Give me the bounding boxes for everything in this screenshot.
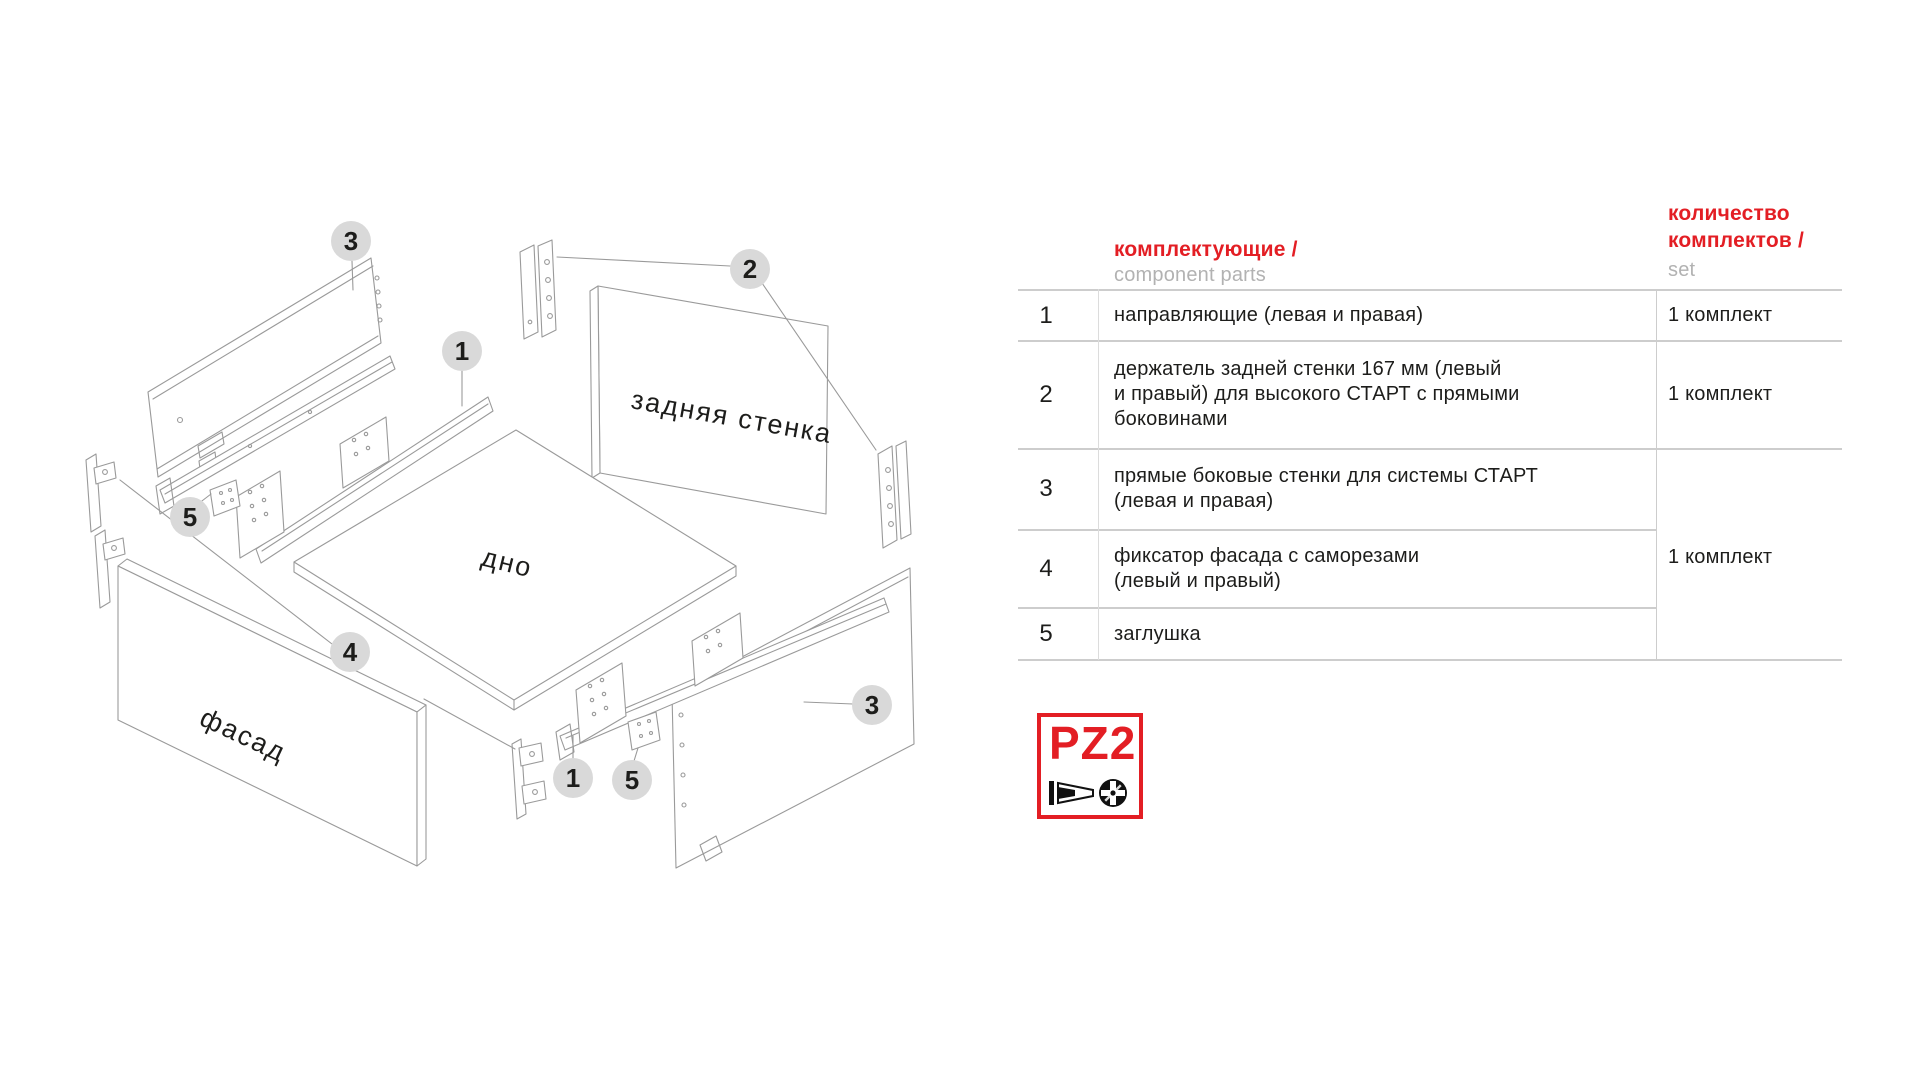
back-wall-holder-right — [878, 441, 911, 548]
svg-text:4: 4 — [343, 637, 358, 667]
table-divider-numbers — [1098, 289, 1099, 660]
table-header-qty-en: set — [1668, 259, 1695, 282]
row-description-line: держатель задней стенки 167 мм (левый — [1114, 357, 1501, 382]
screwdriver-bit-icon — [1047, 773, 1139, 813]
svg-text:1: 1 — [566, 763, 580, 793]
row-number: 3 — [1024, 475, 1068, 503]
table-line-row4 — [1018, 607, 1656, 609]
row-description-line: (левый и правый) — [1114, 569, 1281, 594]
table-header-qty-ru-line2: комплектов / — [1668, 229, 1804, 253]
facade-fixator-right — [512, 739, 546, 819]
cap-plate-top — [210, 480, 240, 516]
table-line-row1 — [1018, 340, 1842, 342]
row-quantity: 1 комплект — [1668, 303, 1772, 328]
row-description: направляющие (левая и правая) — [1114, 303, 1423, 328]
back-wall-holder-left — [520, 240, 556, 339]
table-line-header-bottom — [1018, 289, 1842, 291]
callout-4: 4 — [330, 632, 370, 672]
pz2-logo-text: PZ2 — [1049, 720, 1136, 766]
row-description-line: прямые боковые стенки для системы СТАРТ — [1114, 464, 1538, 489]
callout-5-top: 5 — [170, 497, 210, 537]
pz2-logo: PZ2 — [1037, 713, 1143, 819]
callout-1-bottom: 1 — [553, 758, 593, 798]
exploded-drawer-diagram: задняя стенка дно фасад 3 2 1 5 4 3 — [0, 0, 1010, 1080]
row-description-line: фиксатор фасада с саморезами — [1114, 544, 1419, 569]
svg-text:3: 3 — [865, 690, 879, 720]
callout-5-bottom: 5 — [612, 760, 652, 800]
table-header-parts-en: component parts — [1114, 264, 1266, 287]
row-number: 4 — [1024, 555, 1068, 583]
row-quantity-merged: 1 комплект — [1668, 545, 1772, 570]
svg-text:5: 5 — [183, 502, 197, 532]
row-number: 1 — [1024, 302, 1068, 330]
callout-2: 2 — [730, 249, 770, 289]
svg-text:3: 3 — [344, 226, 358, 256]
instruction-sheet: задняя стенка дно фасад 3 2 1 5 4 3 — [0, 0, 1920, 1080]
table-line-row3 — [1018, 529, 1656, 531]
table-divider-quantity — [1656, 289, 1657, 660]
row-description-line: боковинами — [1114, 407, 1228, 432]
row-description: заглушка — [1114, 622, 1201, 647]
svg-text:2: 2 — [743, 254, 757, 284]
row-description-line: (левая и правая) — [1114, 489, 1273, 514]
row-number: 2 — [1024, 381, 1068, 409]
table-header-qty-ru-line1: количество — [1668, 202, 1790, 226]
row-description-line: и правый) для высокого СТАРТ с прямыми — [1114, 382, 1520, 407]
row-number: 5 — [1024, 620, 1068, 648]
callout-3-bottom: 3 — [852, 685, 892, 725]
svg-text:5: 5 — [625, 765, 639, 795]
svg-text:1: 1 — [455, 336, 469, 366]
callout-1-top: 1 — [442, 331, 482, 371]
row-quantity: 1 комплект — [1668, 382, 1772, 407]
callout-3-top: 3 — [331, 221, 371, 261]
table-line-row2 — [1018, 448, 1842, 450]
table-line-bottom — [1018, 659, 1842, 661]
table-header-parts-ru: комплектующие / — [1114, 238, 1298, 262]
